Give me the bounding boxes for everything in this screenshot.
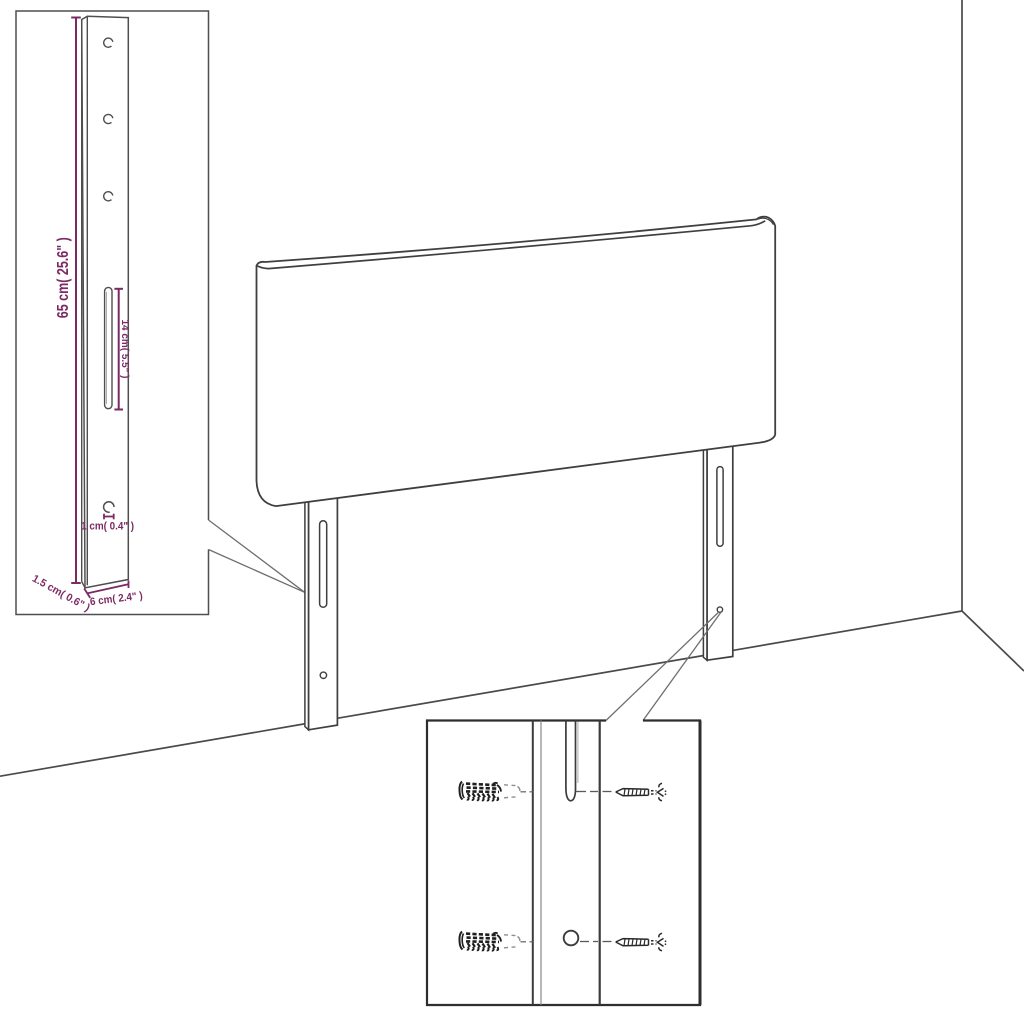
svg-text:14 cm( 5.5" ): 14 cm( 5.5" )	[119, 320, 130, 379]
svg-text:1 cm( 0.4" ): 1 cm( 0.4" )	[81, 521, 134, 533]
svg-text:65 cm( 25.6" ): 65 cm( 25.6" )	[55, 237, 72, 318]
